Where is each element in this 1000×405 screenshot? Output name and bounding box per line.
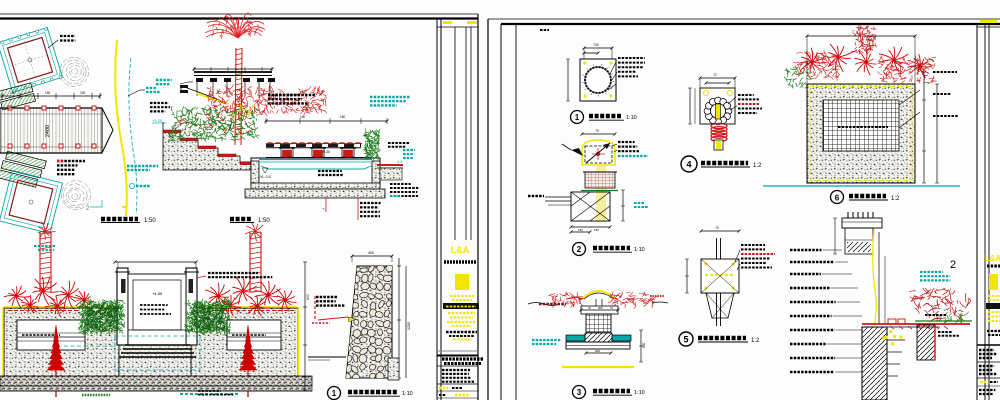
svg-text:70: 70	[595, 129, 599, 133]
svg-text:400: 400	[595, 349, 600, 353]
svg-text:1:50: 1:50	[258, 218, 270, 224]
svg-text:+1.20: +1.20	[152, 118, 163, 123]
svg-text:400: 400	[368, 251, 374, 255]
svg-text:1200: 1200	[407, 322, 411, 330]
svg-text:1: 1	[332, 389, 337, 398]
svg-text:1: 1	[575, 113, 580, 122]
svg-text:150: 150	[300, 115, 306, 119]
svg-text:150: 150	[578, 228, 583, 232]
svg-text:740: 740	[593, 43, 599, 47]
svg-text:1:2: 1:2	[751, 338, 760, 344]
svg-text:2: 2	[950, 259, 956, 271]
svg-text:1:2: 1:2	[753, 163, 762, 169]
svg-text:1:2: 1:2	[891, 196, 900, 202]
svg-text:1:10: 1:10	[634, 247, 645, 253]
svg-text:650: 650	[642, 342, 646, 348]
svg-text:+4.85: +4.85	[152, 291, 163, 296]
svg-text:L&A: L&A	[451, 245, 470, 255]
svg-text:600: 600	[306, 294, 310, 300]
svg-text:3: 3	[577, 388, 582, 397]
svg-text:150: 150	[340, 115, 346, 119]
svg-text:-4.5: -4.5	[396, 160, 403, 164]
svg-text:150: 150	[80, 91, 86, 95]
svg-text:0.30: 0.30	[323, 150, 330, 154]
svg-text:70: 70	[588, 306, 592, 310]
svg-text:70: 70	[715, 226, 719, 230]
svg-text:1:10: 1:10	[626, 115, 637, 121]
svg-text:L&A: L&A	[985, 254, 1000, 263]
svg-text:72: 72	[713, 73, 717, 77]
svg-text:4: 4	[686, 160, 691, 170]
svg-text:300: 300	[598, 306, 603, 310]
svg-text:1.50: 1.50	[856, 31, 863, 35]
svg-text:2: 2	[577, 245, 582, 254]
svg-text:6: 6	[835, 194, 840, 203]
svg-text:5: 5	[683, 335, 688, 345]
svg-text:1:50: 1:50	[144, 218, 156, 224]
svg-text:70: 70	[610, 306, 614, 310]
svg-text:2400: 2400	[45, 125, 51, 137]
svg-text:150: 150	[594, 228, 599, 232]
svg-text:1:10: 1:10	[634, 390, 645, 396]
svg-text:150: 150	[45, 91, 51, 95]
svg-text:1:10: 1:10	[402, 391, 413, 397]
svg-text:VL-0.5: VL-0.5	[260, 175, 271, 179]
